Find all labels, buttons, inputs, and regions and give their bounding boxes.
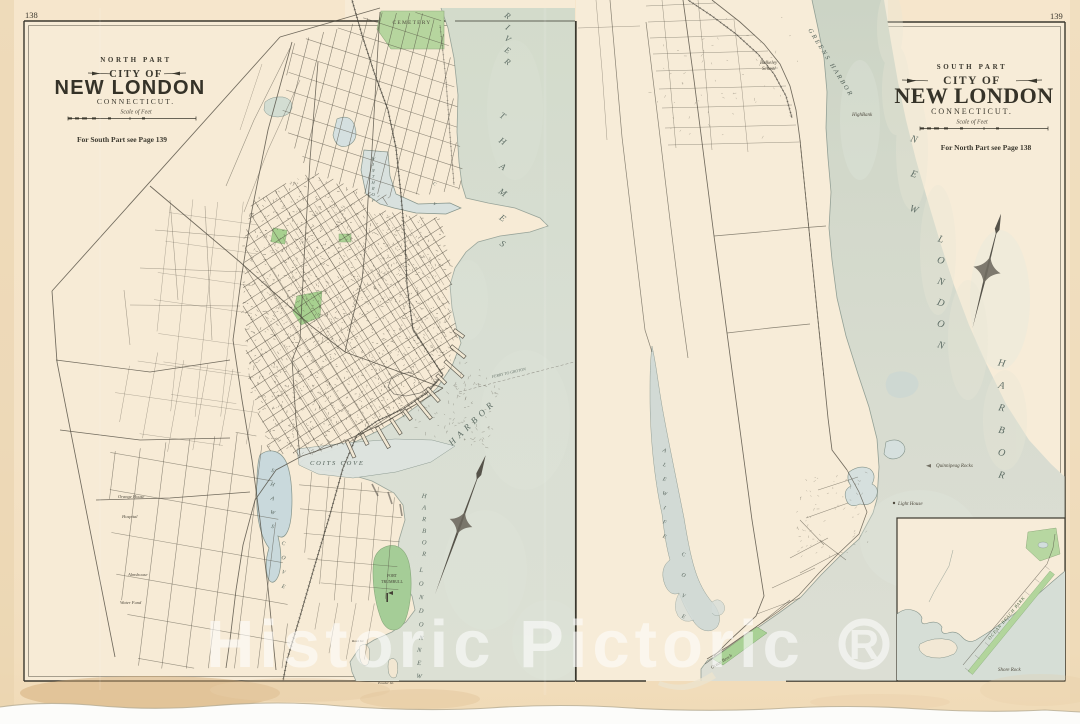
svg-text:Light House: Light House (897, 502, 923, 507)
svg-text:H: H (420, 493, 427, 501)
svg-text:For North Part see Page 138: For North Part see Page 138 (941, 143, 1032, 152)
svg-text:A: A (421, 504, 427, 511)
svg-text:COITS COVE: COITS COVE (310, 460, 365, 467)
svg-text:Water Fund: Water Fund (120, 600, 142, 605)
svg-text:Scale of Feet: Scale of Feet (120, 109, 152, 116)
svg-text:Scale of Feet: Scale of Feet (956, 119, 988, 126)
svg-text:Hospital: Hospital (121, 514, 138, 519)
svg-text:Shore Rock: Shore Rock (998, 668, 1022, 673)
svg-text:TRUMBULL: TRUMBULL (381, 579, 404, 584)
svg-text:R: R (421, 516, 427, 523)
svg-text:Almshouse: Almshouse (127, 572, 148, 577)
svg-text:For South Part see Page 139: For South Part see Page 139 (77, 135, 167, 144)
svg-text:School: School (762, 67, 776, 72)
svg-text:CEMETERY: CEMETERY (393, 20, 432, 26)
svg-text:NEW LONDON: NEW LONDON (894, 83, 1053, 108)
svg-text:Historic Pictoric: Historic Pictoric (206, 607, 805, 682)
svg-text:NEW LONDON: NEW LONDON (55, 77, 206, 99)
svg-text:Bulkeley: Bulkeley (760, 61, 778, 66)
svg-text:FORT: FORT (387, 573, 398, 578)
svg-text:NORTH PART: NORTH PART (100, 56, 171, 64)
svg-text:CONNECTICUT.: CONNECTICUT. (931, 107, 1013, 116)
svg-text:138: 138 (25, 10, 38, 20)
svg-text:R: R (849, 621, 879, 668)
svg-text:Orange House: Orange House (118, 494, 144, 499)
svg-text:R: R (421, 551, 427, 558)
svg-text:Quinnipeag Rocks: Quinnipeag Rocks (936, 464, 973, 469)
svg-text:HighBank: HighBank (851, 113, 873, 118)
svg-text:B: B (422, 528, 427, 535)
svg-text:CONNECTICUT.: CONNECTICUT. (97, 97, 175, 106)
svg-text:139: 139 (1050, 11, 1063, 21)
svg-text:SOUTH PART: SOUTH PART (937, 63, 1008, 71)
